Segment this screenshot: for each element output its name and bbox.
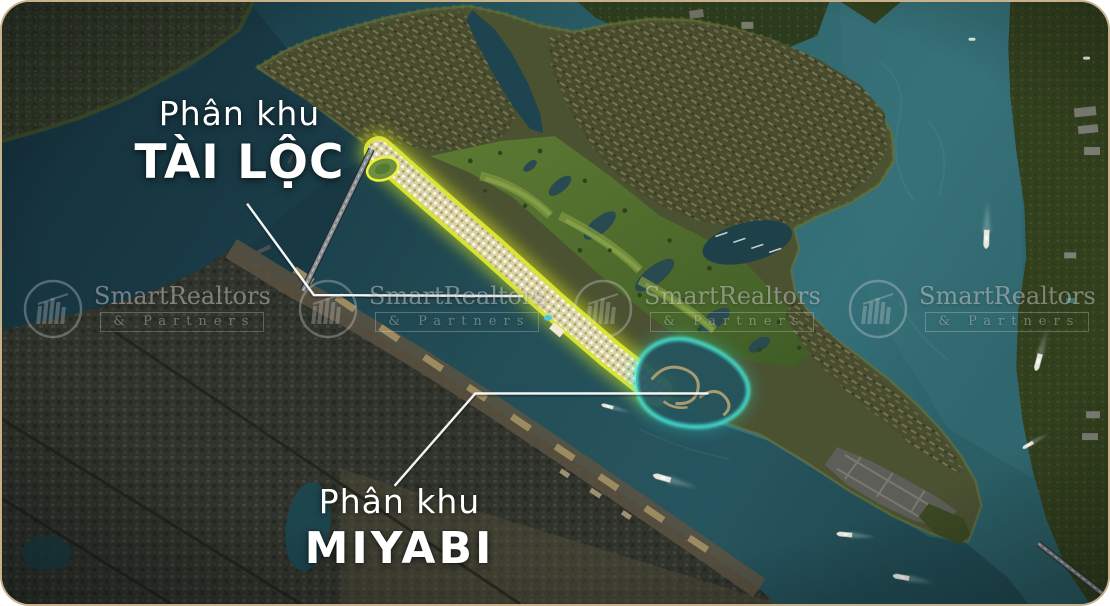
label-tai-loc: Phân khu TÀI LỘC (102, 94, 377, 190)
label-tai-loc-name: TÀI LỘC (102, 135, 377, 190)
label-tai-loc-prefix: Phân khu (102, 94, 377, 133)
masterplan-map: SmartRealtors & Partners SmartRealtors &… (0, 0, 1110, 606)
label-miyabi: Phân khu MIYABI (272, 482, 527, 574)
aerial-map-graphic (2, 2, 1108, 604)
label-miyabi-prefix: Phân khu (272, 482, 527, 521)
vignette (2, 2, 1108, 604)
label-miyabi-name: MIYABI (272, 523, 527, 574)
